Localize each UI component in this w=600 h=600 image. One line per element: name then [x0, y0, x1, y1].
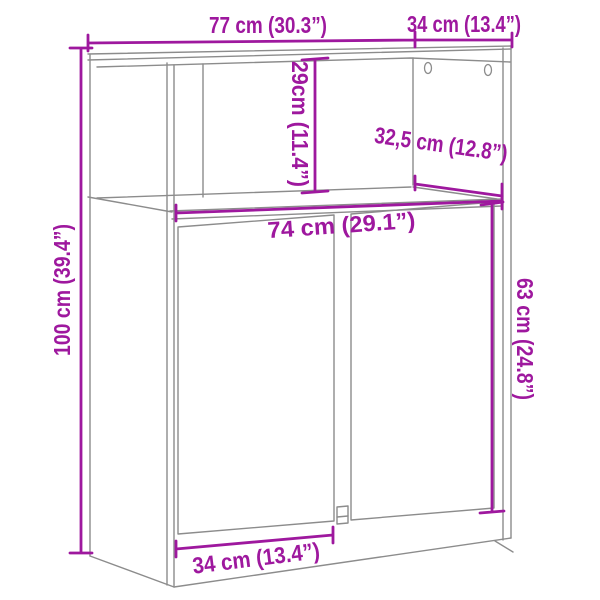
dimension-labels: 77 cm (30.3”) 34 cm (13.4”) 29cm (11.4”)… — [49, 11, 538, 579]
label-door-width: 34 cm (13.4”) — [191, 537, 321, 578]
dim-door-height — [480, 202, 504, 513]
label-door-height: 63 cm (24.8”) — [512, 278, 538, 400]
dimension-diagram: 77 cm (30.3”) 34 cm (13.4”) 29cm (11.4”)… — [0, 0, 600, 600]
shelf-left-side-edge — [88, 197, 172, 212]
side-bottom-edge — [90, 556, 174, 587]
mounting-hole-icon — [425, 63, 432, 74]
label-depth-top: 34 cm (13.4”) — [407, 11, 521, 37]
left-door — [178, 215, 334, 534]
mounting-hole-icon — [485, 65, 492, 76]
door-handle-recess-line — [337, 516, 348, 517]
label-inner-depth: 32,5 cm (12.8”) — [373, 122, 509, 166]
cabinet-dimension-drawing: 77 cm (30.3”) 34 cm (13.4”) 29cm (11.4”)… — [0, 0, 600, 600]
door-handle-recess — [337, 506, 348, 524]
label-inner-width: 74 cm (29.1”) — [267, 207, 416, 243]
label-open-shelf-height: 29cm (11.4”) — [287, 61, 313, 187]
label-width-top: 77 cm (30.3”) — [209, 12, 327, 38]
right-door — [351, 202, 494, 520]
shelf-interior-line — [97, 187, 411, 198]
label-total-height: 100 cm (39.4”) — [49, 224, 75, 356]
base-right-corner — [495, 541, 513, 552]
